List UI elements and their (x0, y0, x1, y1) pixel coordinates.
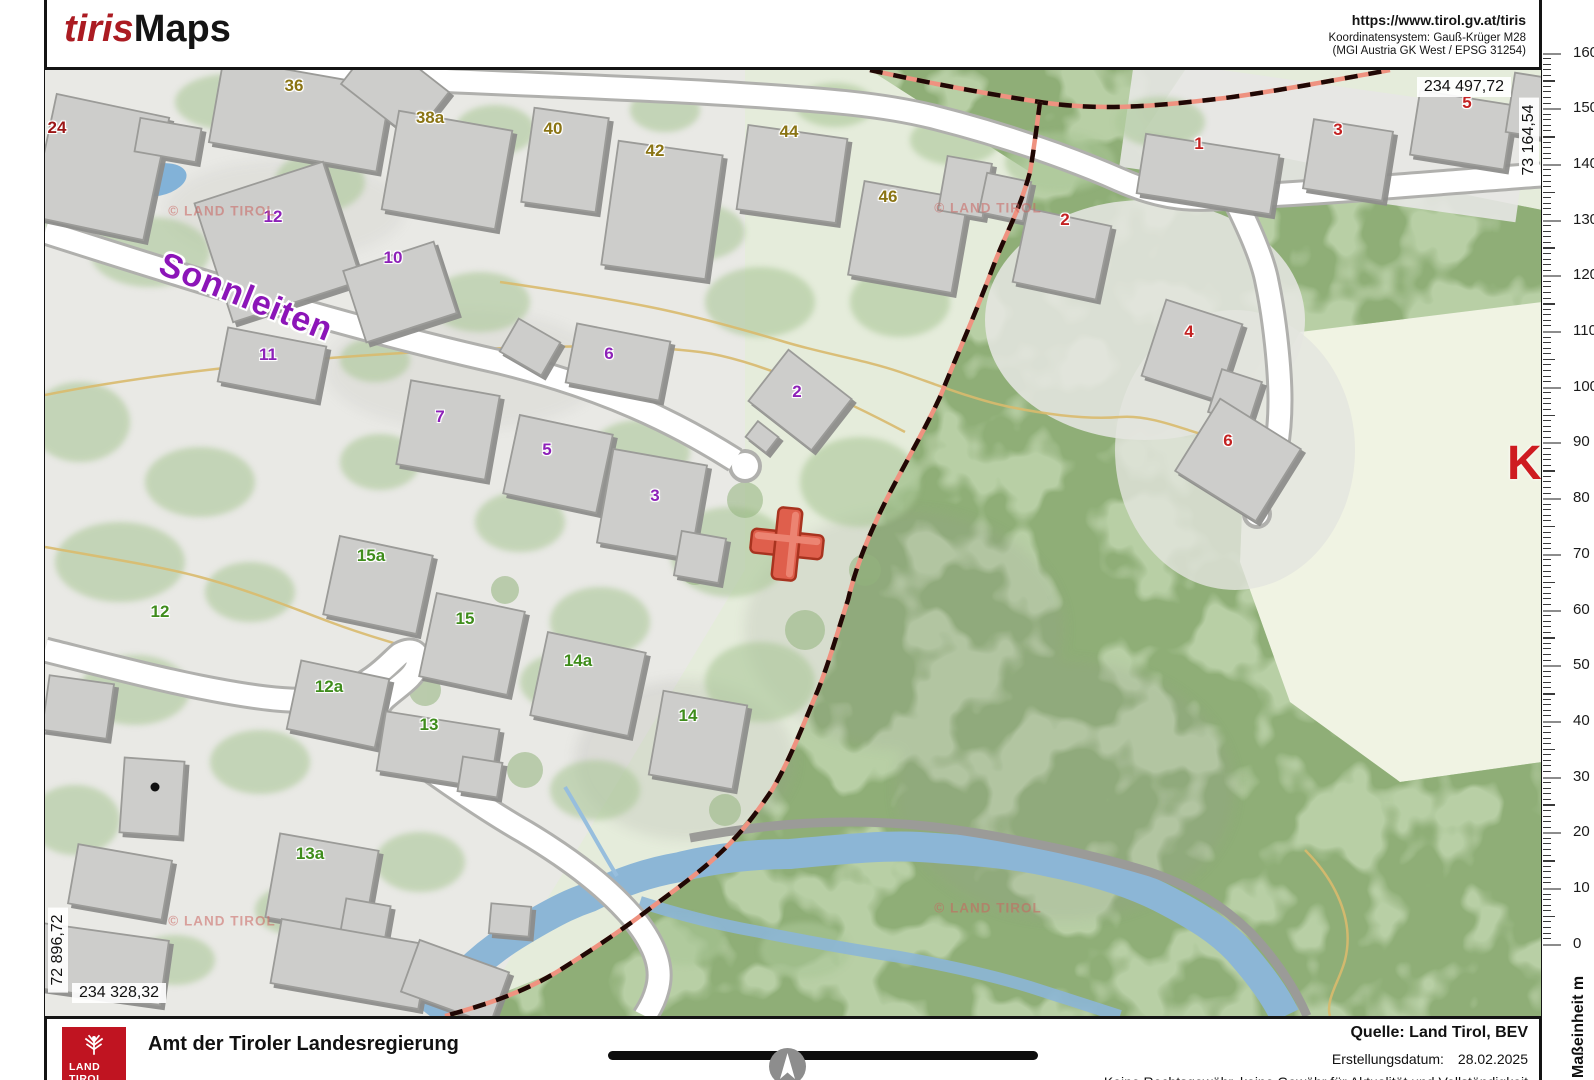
ruler-tick (1543, 208, 1551, 209)
house-number-label: 42 (646, 141, 665, 161)
ruler-tick (1543, 515, 1551, 516)
coordinate-system-line2: (MGI Austria GK West / EPSG 31254) (1328, 45, 1526, 58)
logo-text: LAND TIROL (69, 1061, 103, 1080)
ruler-tick (1543, 325, 1551, 326)
house-number-label: 3 (650, 486, 659, 506)
house-number-label: 11 (259, 345, 277, 365)
ruler-tick (1543, 442, 1561, 444)
ruler-value: 70 (1573, 545, 1590, 562)
ruler-tick (1543, 264, 1551, 265)
ruler-tick (1543, 158, 1551, 159)
ruler-tick (1543, 726, 1551, 727)
ruler-tick (1543, 153, 1551, 154)
ruler-tick (1543, 259, 1551, 260)
ruler-tick (1543, 314, 1551, 315)
ruler-value: 100 (1573, 378, 1594, 395)
ruler-tick (1543, 275, 1561, 277)
ruler-tick (1543, 504, 1551, 505)
coordinate-right-vertical: 73 164,54 (1519, 97, 1539, 182)
source-text: Quelle: Land Tirol, BEV (1104, 1024, 1528, 1042)
scale-ruler: 1601501401301201101009080706050403020100 (1543, 0, 1594, 1080)
ruler-tick (1543, 782, 1551, 783)
house-number-label: 1 (1194, 134, 1203, 154)
ruler-tick (1543, 905, 1551, 906)
ruler-tick (1543, 448, 1551, 449)
ruler-value: 20 (1573, 823, 1590, 840)
ruler-unit-label: Maßeinheit m (1570, 972, 1590, 1080)
ruler-tick (1543, 687, 1551, 688)
ruler-value: 160 (1573, 44, 1594, 61)
ruler-tick (1543, 342, 1551, 343)
ruler-tick (1543, 604, 1551, 605)
header-info: https://www.tirol.gv.at/tiris Koordinate… (1328, 12, 1526, 58)
ruler-tick (1543, 331, 1561, 333)
ruler-tick (1543, 220, 1561, 222)
ruler-tick (1543, 665, 1561, 667)
house-number-label: 46 (879, 187, 898, 207)
house-number-label: 4 (1184, 322, 1193, 342)
ruler-tick (1543, 704, 1551, 705)
ruler-tick (1543, 760, 1551, 761)
ruler-tick (1543, 286, 1551, 287)
ruler-tick (1543, 164, 1561, 166)
ruler-tick (1543, 771, 1551, 772)
ruler-tick (1543, 548, 1551, 549)
ruler-tick (1543, 554, 1561, 556)
ruler-tick (1543, 91, 1551, 92)
ruler-tick (1543, 921, 1551, 922)
ruler-tick (1543, 593, 1551, 594)
ruler-tick (1543, 777, 1561, 779)
house-number-label: 7 (435, 407, 444, 427)
ruler-value: 10 (1573, 879, 1590, 896)
ruler-tick (1543, 699, 1551, 700)
ruler-tick (1543, 387, 1561, 389)
ruler-tick (1543, 621, 1551, 622)
ruler-tick (1543, 114, 1551, 115)
ruler-tick (1543, 398, 1551, 399)
ruler-tick (1543, 376, 1551, 377)
ruler-value: 90 (1573, 433, 1590, 450)
ruler-tick (1543, 303, 1555, 305)
ruler-tick (1543, 197, 1551, 198)
ruler-value: 140 (1573, 155, 1594, 172)
logo-text-tirol: TIROL (69, 1073, 103, 1080)
ruler-tick (1543, 359, 1555, 361)
house-number-label: 10 (384, 248, 403, 268)
house-number-label: 15 (456, 609, 475, 629)
ruler-tick (1543, 53, 1561, 55)
ruler-tick (1543, 175, 1551, 176)
ruler-tick (1543, 409, 1551, 410)
ruler-tick (1543, 509, 1551, 510)
ruler-tick (1543, 236, 1551, 237)
ruler-value: 80 (1573, 489, 1590, 506)
ruler-tick (1543, 242, 1551, 243)
creation-date-value: 28.02.2025 (1458, 1051, 1528, 1067)
ruler-tick (1543, 804, 1555, 806)
ruler-tick (1543, 626, 1551, 627)
disclaimer-text: Keine Rechtsgewähr, keine Gewähr für Akt… (1104, 1074, 1528, 1080)
footer-meta: Quelle: Land Tirol, BEV Erstellungsdatum… (1104, 1024, 1528, 1080)
ruler-tick (1543, 732, 1551, 733)
ruler-tick (1543, 64, 1551, 65)
ruler-tick (1543, 337, 1551, 338)
ruler-tick (1543, 392, 1551, 393)
ruler-tick (1543, 454, 1551, 455)
house-number-label: 2 (792, 382, 801, 402)
ruler-tick (1543, 738, 1551, 739)
ruler-tick (1543, 192, 1555, 194)
ruler-tick (1543, 576, 1551, 577)
ruler-tick (1543, 80, 1555, 82)
ruler-tick (1543, 799, 1551, 800)
house-number-label: 13a (296, 844, 324, 864)
ruler-tick (1543, 715, 1551, 716)
house-number-label: 36 (285, 76, 304, 96)
ruler-tick (1543, 415, 1555, 417)
ruler-tick (1543, 320, 1551, 321)
coordinate-system-info: Koordinatensystem: Gauß-Krüger M28 (MGI … (1328, 32, 1526, 58)
copyright-watermark: © LAND TIROL (934, 201, 1041, 216)
ruler-tick (1543, 754, 1551, 755)
ruler-tick (1543, 309, 1551, 310)
ruler-tick (1543, 292, 1551, 293)
ruler-tick (1543, 86, 1551, 87)
ruler-tick (1543, 203, 1551, 204)
ruler-tick (1543, 481, 1551, 482)
ruler-tick (1543, 743, 1551, 744)
ruler-tick (1543, 437, 1551, 438)
house-number-label: 12a (315, 677, 343, 697)
ruler-tick (1543, 749, 1555, 751)
agency-title: Amt der Tiroler Landesregierung (148, 1033, 459, 1056)
ruler-tick (1543, 916, 1555, 918)
ruler-value: 120 (1573, 266, 1594, 283)
coordinate-system-line1: Koordinatensystem: Gauß-Krüger M28 (1328, 32, 1526, 45)
house-number-label: 3 (1333, 120, 1342, 140)
tiris-maps-print-view: { "header": { "brand_tiris": "tiris", "b… (0, 0, 1594, 1080)
ruler-tick (1543, 682, 1551, 683)
map-bottom-border (44, 1016, 1542, 1019)
ruler-value: 130 (1573, 211, 1594, 228)
copyright-watermark: © LAND TIROL (168, 204, 275, 219)
house-number-label: 6 (1223, 431, 1232, 451)
ruler-tick (1543, 643, 1551, 644)
house-number-label: 44 (780, 122, 799, 142)
ruler-value: 30 (1573, 768, 1590, 785)
copyright-watermark: © LAND TIROL (168, 914, 275, 929)
ruler-tick (1543, 765, 1551, 766)
house-number-label: 2 (1060, 210, 1069, 230)
ruler-tick (1543, 520, 1551, 521)
ruler-value: 50 (1573, 656, 1590, 673)
ruler-tick (1543, 832, 1561, 834)
ruler-tick (1543, 426, 1551, 427)
ruler-value: 110 (1573, 322, 1594, 339)
ruler-tick (1543, 364, 1551, 365)
ruler-tick (1543, 843, 1551, 844)
service-url: https://www.tirol.gv.at/tiris (1328, 12, 1526, 28)
ruler-tick (1543, 348, 1551, 349)
ruler-tick (1543, 476, 1551, 477)
ruler-tick (1543, 370, 1551, 371)
app-logo: tirisMaps (64, 8, 231, 51)
ruler-tick (1543, 871, 1551, 872)
house-number-label: 12 (151, 602, 170, 622)
ruler-tick (1543, 537, 1551, 538)
ruler-tick (1543, 103, 1551, 104)
ruler-tick (1543, 125, 1551, 126)
ruler-tick (1543, 108, 1561, 110)
ruler-tick (1543, 498, 1561, 500)
ruler-tick (1543, 821, 1551, 822)
house-number-label: 38a (416, 108, 444, 128)
house-number-label: 40 (544, 119, 563, 139)
ruler-tick (1543, 671, 1551, 672)
ruler-tick (1543, 598, 1551, 599)
ruler-tick (1543, 894, 1551, 895)
house-number-label: 5 (542, 440, 551, 460)
ruler-tick (1543, 147, 1551, 148)
ruler-tick (1543, 470, 1555, 472)
ruler-tick (1543, 130, 1551, 131)
ruler-tick (1543, 615, 1551, 616)
ruler-value: 150 (1573, 99, 1594, 116)
ruler-tick (1543, 587, 1551, 588)
ruler-tick (1543, 637, 1555, 639)
ruler-tick (1543, 676, 1551, 677)
app-logo-maps: Maps (134, 8, 231, 50)
ruler-tick (1543, 788, 1551, 789)
ruler-tick (1543, 253, 1551, 254)
ruler-tick (1543, 559, 1551, 560)
ruler-tick (1543, 465, 1551, 466)
ruler-tick (1543, 142, 1551, 143)
ruler-tick (1543, 420, 1551, 421)
creation-date-label: Erstellungsdatum: (1332, 1051, 1444, 1067)
ruler-tick (1543, 247, 1555, 249)
logo-text-land: LAND (69, 1061, 103, 1073)
ruler-tick (1543, 97, 1551, 98)
ruler-tick (1543, 225, 1551, 226)
ruler-tick (1543, 270, 1551, 271)
ruler-tick (1543, 810, 1551, 811)
ruler-tick (1543, 660, 1551, 661)
ruler-tick (1543, 186, 1551, 187)
ruler-tick (1543, 58, 1551, 59)
ruler-tick (1543, 860, 1555, 862)
place-letter-label: K (1507, 436, 1541, 491)
ruler-value: 40 (1573, 712, 1590, 729)
ruler-tick (1543, 944, 1561, 946)
ruler-tick (1543, 431, 1551, 432)
ruler-tick (1543, 69, 1551, 70)
ruler-tick (1543, 493, 1551, 494)
ruler-tick (1543, 610, 1561, 612)
ruler-value: 0 (1573, 935, 1581, 952)
ruler-tick (1543, 938, 1551, 939)
ruler-tick (1543, 75, 1551, 76)
coordinate-bottom-left: 234 328,32 (72, 983, 166, 1003)
ruler-tick (1543, 866, 1551, 867)
ruler-tick (1543, 927, 1551, 928)
ruler-tick (1543, 487, 1551, 488)
ruler-tick (1543, 827, 1551, 828)
house-number-label: 6 (604, 344, 613, 364)
ruler-tick (1543, 181, 1551, 182)
ruler-tick (1543, 882, 1551, 883)
ruler-tick (1543, 910, 1551, 911)
house-number-label: 14 (679, 706, 698, 726)
ruler-tick (1543, 632, 1551, 633)
scale-bar (608, 1051, 1038, 1060)
ruler-tick (1543, 877, 1551, 878)
ruler-tick (1543, 119, 1551, 120)
house-number-label: 13 (420, 715, 439, 735)
ruler-tick (1543, 816, 1551, 817)
app-logo-tiris: tiris (64, 8, 134, 50)
house-number-label: 14a (564, 651, 592, 671)
ruler-tick (1543, 526, 1555, 528)
ruler-tick (1543, 710, 1551, 711)
north-arrow-icon (769, 1048, 806, 1080)
ruler-tick (1543, 693, 1555, 695)
ruler-tick (1543, 281, 1551, 282)
house-number-label: 15a (357, 546, 385, 566)
coordinate-top-right: 234 497,72 (1417, 77, 1511, 97)
ruler-tick (1543, 849, 1551, 850)
map-canvas[interactable]: 3638a40424446241210116275313524615a12151… (45, 70, 1541, 1016)
ruler-tick (1543, 532, 1551, 533)
copyright-watermark: © LAND TIROL (934, 901, 1041, 916)
house-number-label: 24 (48, 118, 67, 138)
ruler-tick (1543, 403, 1551, 404)
ruler-tick (1543, 136, 1555, 138)
ruler-tick (1543, 838, 1551, 839)
ruler-tick (1543, 648, 1551, 649)
ruler-tick (1543, 565, 1551, 566)
ruler-tick (1543, 231, 1551, 232)
ruler-tick (1543, 793, 1551, 794)
ruler-tick (1543, 381, 1551, 382)
ruler-value: 60 (1573, 601, 1590, 618)
ruler-tick (1543, 582, 1555, 584)
ruler-tick (1543, 214, 1551, 215)
ruler-tick (1543, 353, 1551, 354)
tirol-eagle-icon (81, 1032, 107, 1063)
creation-date: Erstellungsdatum:28.02.2025 (1104, 1051, 1528, 1067)
ruler-tick (1543, 654, 1551, 655)
ruler-tick (1543, 571, 1551, 572)
ruler-tick (1543, 855, 1551, 856)
ruler-tick (1543, 459, 1551, 460)
land-tirol-logo: LAND TIROL (62, 1027, 126, 1080)
ruler-tick (1543, 888, 1561, 890)
coordinate-left-vertical: 72 896,72 (48, 907, 68, 992)
ruler-tick (1543, 543, 1551, 544)
ruler-tick (1543, 298, 1551, 299)
ruler-tick (1543, 899, 1551, 900)
ruler-tick (1543, 933, 1551, 934)
ruler-tick (1543, 721, 1561, 723)
ruler-tick (1543, 169, 1551, 170)
